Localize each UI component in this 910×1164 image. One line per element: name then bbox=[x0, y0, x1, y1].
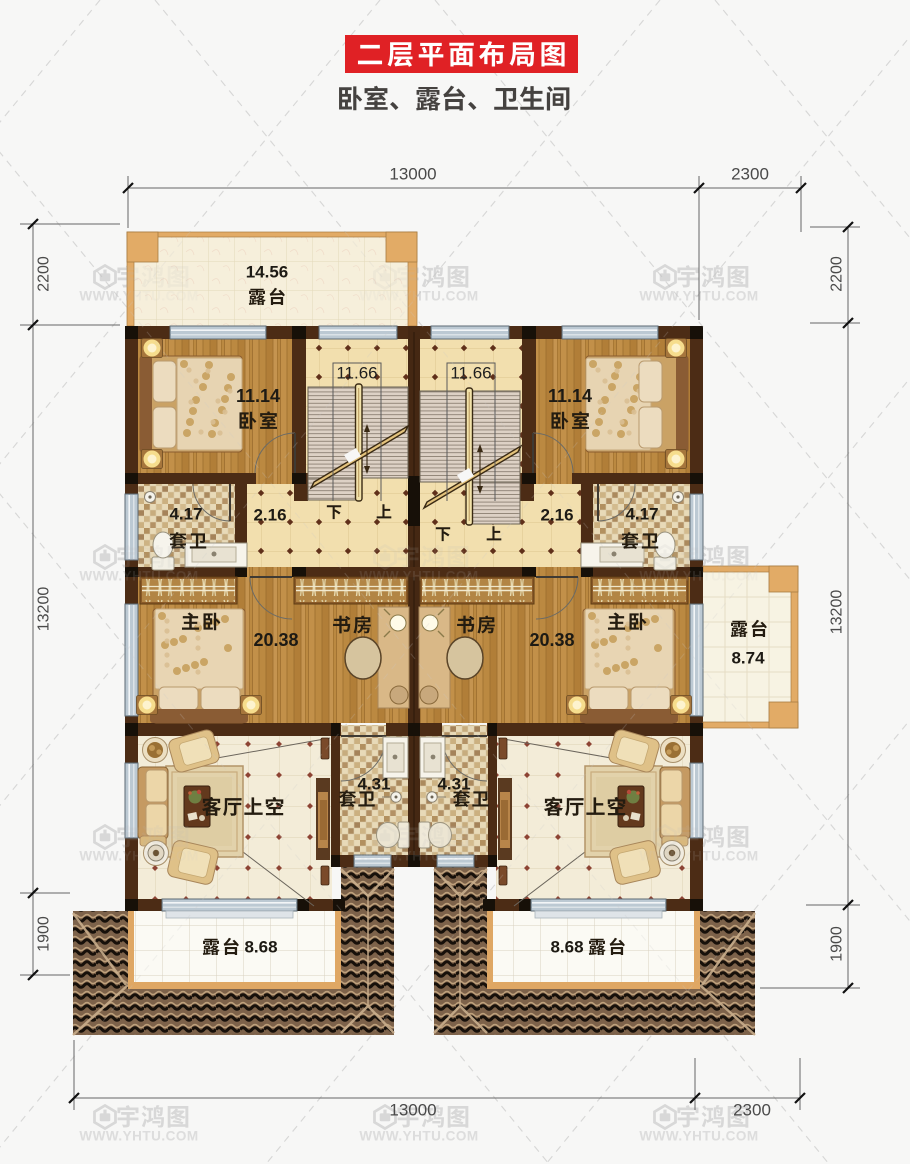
svg-text:20.38: 20.38 bbox=[253, 630, 298, 650]
svg-text:WWW.YHTU.COM: WWW.YHTU.COM bbox=[359, 849, 478, 864]
svg-text:2300: 2300 bbox=[731, 165, 769, 184]
svg-text:13200: 13200 bbox=[36, 587, 53, 632]
svg-text:11.66: 11.66 bbox=[336, 364, 377, 383]
svg-text:2200: 2200 bbox=[829, 256, 846, 292]
svg-text:11.14: 11.14 bbox=[236, 386, 280, 406]
svg-text:11.66: 11.66 bbox=[450, 364, 491, 383]
svg-text:8.68: 8.68 bbox=[244, 938, 277, 957]
svg-text:8.74: 8.74 bbox=[731, 649, 765, 668]
svg-text:WWW.YHTU.COM: WWW.YHTU.COM bbox=[79, 1129, 198, 1144]
svg-text:WWW.YHTU.COM: WWW.YHTU.COM bbox=[639, 1129, 758, 1144]
svg-text:13200: 13200 bbox=[829, 590, 846, 635]
svg-text:1900: 1900 bbox=[829, 926, 846, 962]
svg-text:2.16: 2.16 bbox=[540, 506, 573, 525]
svg-text:2.16: 2.16 bbox=[253, 506, 286, 525]
svg-text:WWW.YHTU.COM: WWW.YHTU.COM bbox=[79, 849, 198, 864]
svg-text:WWW.YHTU.COM: WWW.YHTU.COM bbox=[359, 289, 478, 304]
svg-text:1900: 1900 bbox=[36, 916, 53, 952]
svg-text:WWW.YHTU.COM: WWW.YHTU.COM bbox=[359, 569, 478, 584]
svg-text:4.31: 4.31 bbox=[437, 775, 470, 794]
svg-text:13000: 13000 bbox=[389, 1101, 436, 1120]
svg-text:WWW.YHTU.COM: WWW.YHTU.COM bbox=[639, 849, 758, 864]
svg-text:4.17: 4.17 bbox=[625, 505, 658, 524]
svg-text:WWW.YHTU.COM: WWW.YHTU.COM bbox=[639, 569, 758, 584]
svg-text:WWW.YHTU.COM: WWW.YHTU.COM bbox=[79, 569, 198, 584]
svg-text:20.38: 20.38 bbox=[529, 630, 574, 650]
svg-text:4.31: 4.31 bbox=[357, 775, 390, 794]
svg-text:14.56: 14.56 bbox=[246, 263, 289, 282]
svg-text:2200: 2200 bbox=[36, 256, 53, 292]
svg-text:13000: 13000 bbox=[389, 165, 436, 184]
svg-text:2300: 2300 bbox=[733, 1101, 771, 1120]
svg-text:8.68: 8.68 bbox=[550, 938, 583, 957]
svg-text:WWW.YHTU.COM: WWW.YHTU.COM bbox=[359, 1129, 478, 1144]
svg-text:4.17: 4.17 bbox=[169, 505, 202, 524]
svg-text:11.14: 11.14 bbox=[548, 386, 592, 406]
svg-text:WWW.YHTU.COM: WWW.YHTU.COM bbox=[79, 289, 198, 304]
